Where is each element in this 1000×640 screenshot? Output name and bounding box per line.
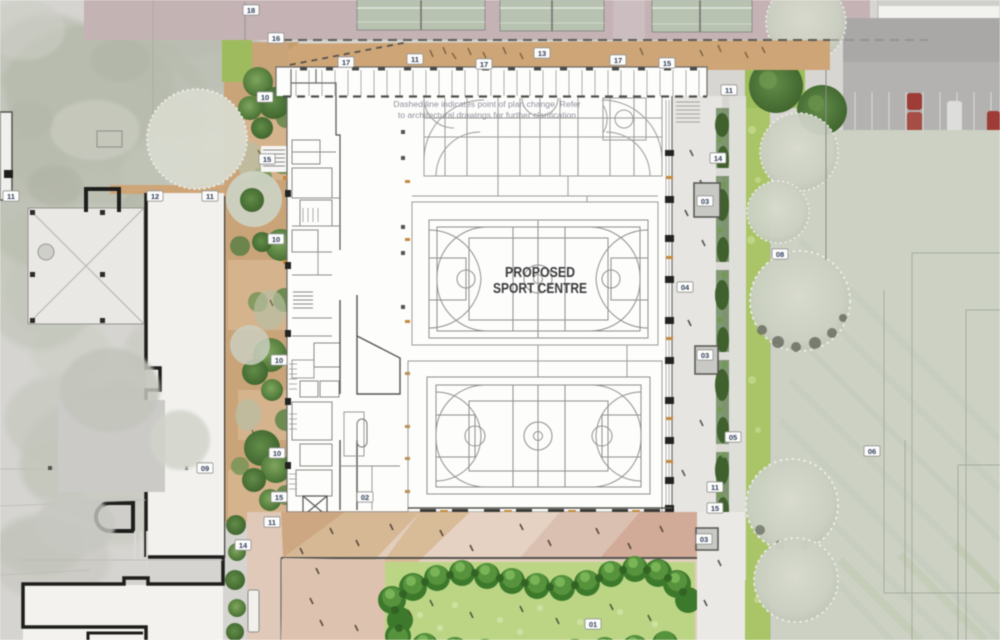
svg-text:16: 16	[272, 34, 280, 43]
svg-text:14: 14	[714, 154, 723, 163]
svg-text:PROPOSED: PROPOSED	[505, 265, 575, 281]
svg-text:13: 13	[538, 49, 546, 58]
svg-text:SPORT CENTRE: SPORT CENTRE	[493, 281, 587, 297]
svg-text:17: 17	[480, 60, 488, 69]
svg-text:10: 10	[261, 93, 269, 102]
svg-text:03: 03	[701, 197, 709, 206]
svg-text:08: 08	[776, 250, 784, 259]
svg-text:10: 10	[273, 449, 281, 458]
svg-text:11: 11	[206, 192, 214, 201]
svg-text:15: 15	[663, 59, 671, 68]
svg-text:06: 06	[868, 447, 876, 456]
svg-text:03: 03	[700, 535, 708, 544]
svg-text:01: 01	[589, 620, 597, 629]
svg-text:11: 11	[711, 483, 719, 492]
svg-text:02: 02	[361, 493, 369, 502]
svg-text:18: 18	[247, 6, 255, 15]
svg-text:11: 11	[411, 55, 419, 64]
svg-text:17: 17	[614, 56, 622, 65]
svg-text:15: 15	[263, 155, 271, 164]
svg-text:11: 11	[268, 518, 276, 527]
svg-text:04: 04	[681, 283, 690, 292]
svg-text:05: 05	[729, 433, 737, 442]
svg-text:09: 09	[201, 464, 209, 473]
svg-text:17: 17	[342, 58, 350, 67]
svg-text:12: 12	[151, 192, 159, 201]
svg-text:11: 11	[725, 86, 733, 95]
svg-text:10: 10	[275, 356, 283, 365]
svg-text:10: 10	[272, 235, 280, 244]
svg-text:15: 15	[711, 504, 719, 513]
svg-text:Dashed line indicates point of: Dashed line indicates point of plan chan…	[393, 99, 580, 109]
svg-text:15: 15	[275, 493, 283, 502]
svg-text:14: 14	[239, 541, 248, 550]
svg-text:11: 11	[7, 192, 15, 201]
svg-text:03: 03	[701, 351, 709, 360]
